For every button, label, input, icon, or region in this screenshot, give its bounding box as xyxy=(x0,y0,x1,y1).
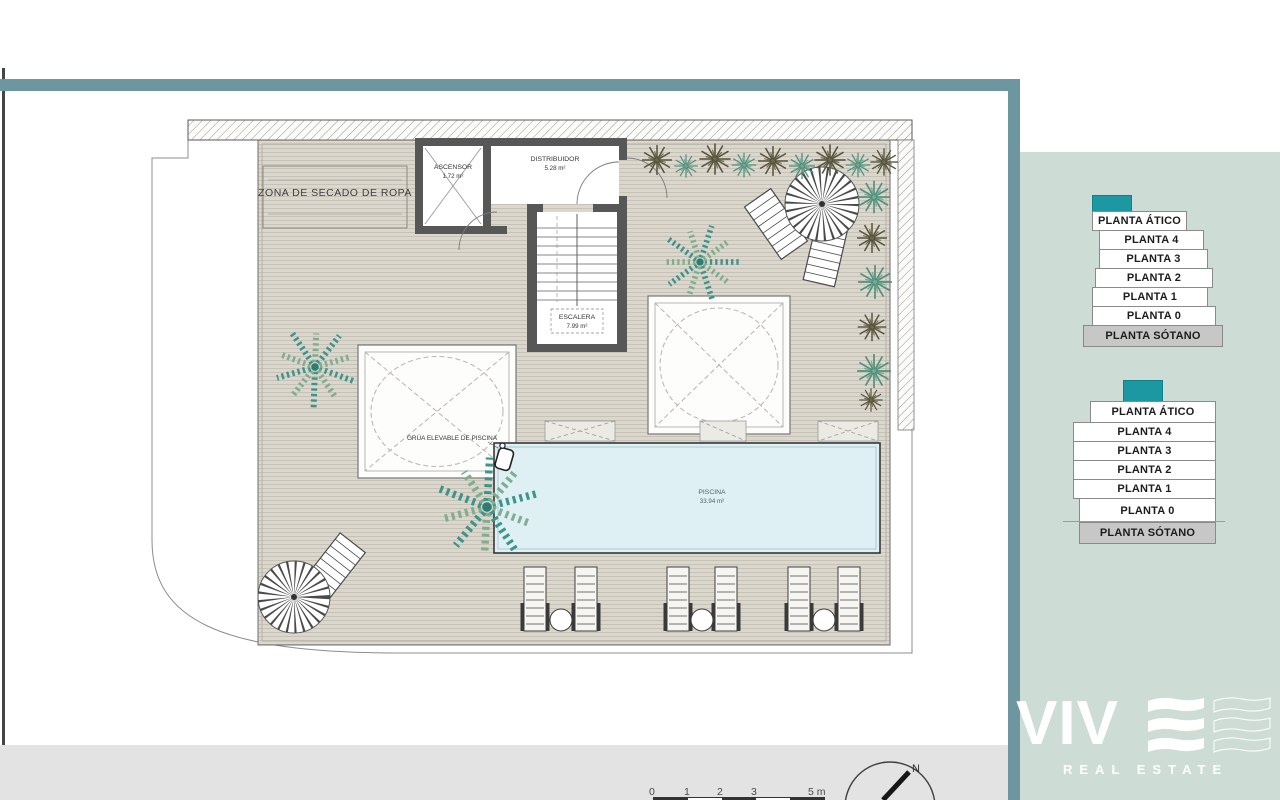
pool-hoist-label: GRÚA ELEVABLE DE PISCINA xyxy=(407,433,498,442)
stack-bottom-floor-sotano[interactable]: PLANTA SÓTANO xyxy=(1079,522,1216,544)
north-wall-hatch xyxy=(188,120,912,140)
north-label: N xyxy=(912,763,920,775)
stairs-label: ESCALERA xyxy=(559,314,596,321)
elevator-area: 1.72 m² xyxy=(443,173,464,180)
stack-bottom-floor-1[interactable]: PLANTA 1 xyxy=(1073,479,1216,499)
stack-bottom-floor-4[interactable]: PLANTA 4 xyxy=(1073,422,1216,442)
stack-bottom-floor-3[interactable]: PLANTA 3 xyxy=(1073,441,1216,461)
pool-side-grates xyxy=(545,421,878,441)
logo-e-bars xyxy=(1148,696,1274,758)
skylight-right xyxy=(648,296,790,434)
logo-word: VIV xyxy=(1016,688,1119,759)
pool: PISCINA 33.94 m² xyxy=(494,443,880,553)
pool-area-label: 33.94 m² xyxy=(700,498,724,505)
stack-top-floor-atico[interactable]: PLANTA ÁTICO xyxy=(1092,211,1187,231)
stairs-area: 7.99 m² xyxy=(567,323,588,330)
hall-label: DISTRIBUIDOR xyxy=(531,156,580,163)
top-accent-bar xyxy=(0,79,1019,91)
logo-tagline: REAL ESTATE xyxy=(1063,762,1228,777)
stack-top-floor-4[interactable]: PLANTA 4 xyxy=(1099,230,1204,250)
north-compass: N xyxy=(825,748,965,800)
stack-bottom-floor-0[interactable]: PLANTA 0 xyxy=(1079,498,1216,523)
stack-bottom-active-floor-indicator[interactable] xyxy=(1123,380,1163,402)
stack-bottom-floor-2[interactable]: PLANTA 2 xyxy=(1073,460,1216,480)
pool-label: PISCINA xyxy=(698,489,726,496)
stack-bottom-floor-atico[interactable]: PLANTA ÁTICO xyxy=(1090,401,1216,423)
drying-zone-label: ZONA DE SECADO DE ROPA xyxy=(258,187,412,199)
stack-top-active-floor-indicator[interactable] xyxy=(1092,195,1132,212)
floor-plan: ZONA DE SECADO DE ROPA xyxy=(0,92,1010,745)
east-wall-hatch xyxy=(898,140,914,430)
stack-top-floor-sotano[interactable]: PLANTA SÓTANO xyxy=(1083,325,1223,347)
stack-top-floor-2[interactable]: PLANTA 2 xyxy=(1095,268,1213,288)
page: ZONA DE SECADO DE ROPA xyxy=(0,0,1280,800)
stack-top-floor-3[interactable]: PLANTA 3 xyxy=(1099,249,1208,269)
stack-top-floor-0[interactable]: PLANTA 0 xyxy=(1092,306,1216,326)
brand-logo: VIV REAL ESTATE xyxy=(1014,688,1274,788)
elevator-label: ASCENSOR xyxy=(434,164,472,171)
stack-top-floor-1[interactable]: PLANTA 1 xyxy=(1092,287,1208,307)
hall-area: 5.28 m² xyxy=(545,165,566,172)
